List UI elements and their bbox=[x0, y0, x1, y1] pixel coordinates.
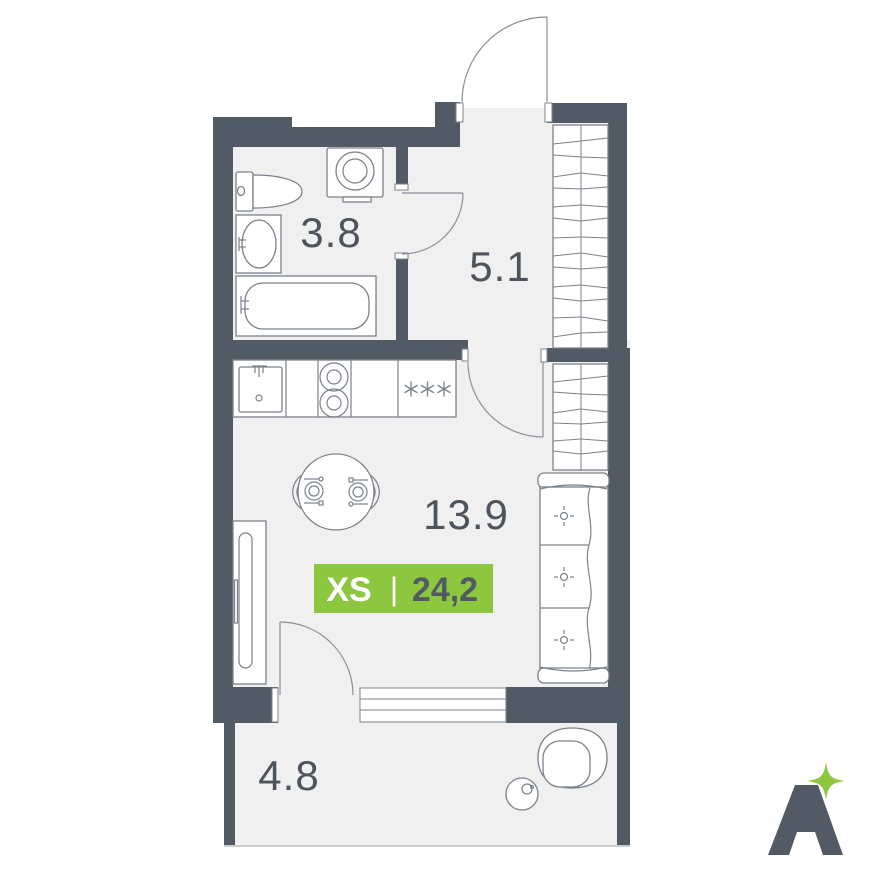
badge-divider: | bbox=[390, 571, 398, 607]
floorplan-svg: 3.8 5.1 13.9 4.8 XS | 24,2 bbox=[0, 0, 880, 880]
wall-bottom-left-block bbox=[213, 687, 278, 723]
wall-bath-bottom bbox=[213, 340, 468, 360]
armchair-icon bbox=[538, 728, 607, 788]
hall-area-label: 5.1 bbox=[469, 243, 530, 290]
wall-balcony-right bbox=[617, 723, 630, 845]
wall-top-right bbox=[547, 103, 627, 123]
side-table-icon bbox=[506, 778, 538, 810]
washbasin-icon bbox=[236, 215, 281, 273]
bathtub-icon bbox=[236, 276, 376, 336]
wall-balcony-left bbox=[224, 723, 235, 845]
bathroom-area-label: 3.8 bbox=[300, 209, 361, 256]
entrance-jamb-left bbox=[456, 103, 463, 122]
badge-type-label: XS bbox=[326, 571, 371, 609]
wall-bath-divider-bottom bbox=[396, 253, 408, 340]
wall-right-upper bbox=[608, 123, 627, 348]
fridge-asterisks-icon bbox=[405, 382, 451, 397]
balcony-window bbox=[360, 688, 506, 722]
bath-jamb-top bbox=[395, 184, 408, 190]
apartment-type-badge: XS | 24,2 bbox=[314, 564, 493, 613]
hall-jamb-right bbox=[541, 349, 547, 362]
wall-window-band bbox=[506, 687, 630, 723]
hall-jamb-left bbox=[462, 349, 468, 361]
kitchen-sink-icon bbox=[239, 366, 282, 412]
balcony-area-label: 4.8 bbox=[258, 752, 319, 799]
badge-total-area: 24,2 bbox=[412, 571, 478, 609]
entrance-jamb-right bbox=[545, 103, 552, 122]
wall-hall-bottom bbox=[547, 348, 630, 362]
floorplan-image: 3.8 5.1 13.9 4.8 XS | 24,2 bbox=[0, 0, 880, 880]
entrance-door bbox=[462, 17, 547, 102]
developer-logo bbox=[768, 762, 845, 855]
wall-left bbox=[213, 147, 233, 687]
wall-right-mid bbox=[608, 362, 630, 687]
sofa-icon bbox=[538, 473, 609, 683]
balcony-jamb-left bbox=[272, 688, 278, 722]
washing-machine-icon bbox=[327, 148, 383, 202]
wardrobe-left bbox=[233, 521, 266, 684]
logo-letter-a bbox=[768, 785, 843, 855]
kitchen-counter bbox=[233, 360, 456, 417]
living-area-label: 13.9 bbox=[423, 491, 509, 538]
wall-top bbox=[213, 102, 460, 147]
